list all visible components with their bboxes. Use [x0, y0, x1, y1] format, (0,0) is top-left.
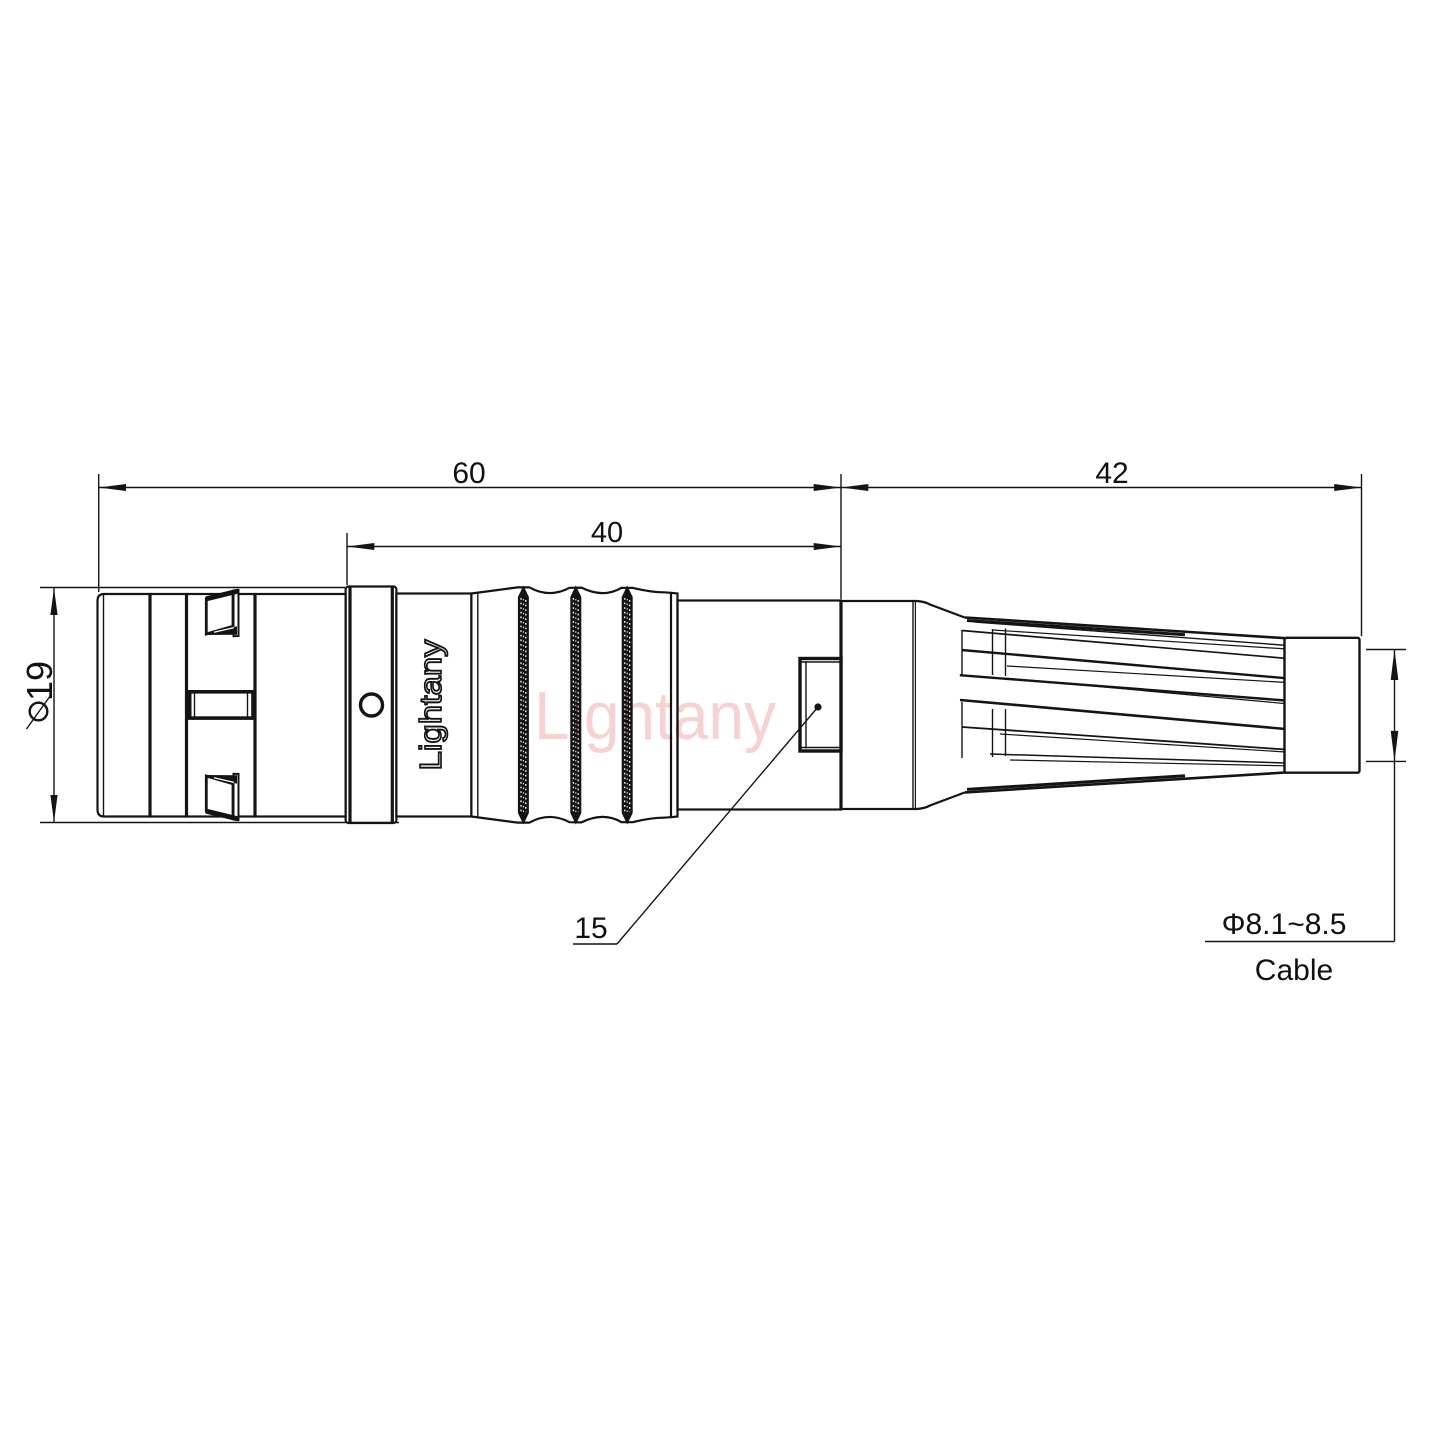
svg-text:42: 42	[1095, 457, 1128, 490]
svg-text:Cable: Cable	[1255, 954, 1333, 987]
svg-text:Lightany: Lightany	[413, 639, 448, 771]
svg-text:60: 60	[452, 457, 485, 490]
svg-text:15: 15	[574, 912, 607, 945]
svg-text:Φ8.1~8.5: Φ8.1~8.5	[1222, 908, 1347, 941]
svg-text:Lightany: Lightany	[534, 678, 776, 754]
svg-text:19: 19	[19, 661, 60, 701]
svg-text:40: 40	[591, 517, 623, 549]
